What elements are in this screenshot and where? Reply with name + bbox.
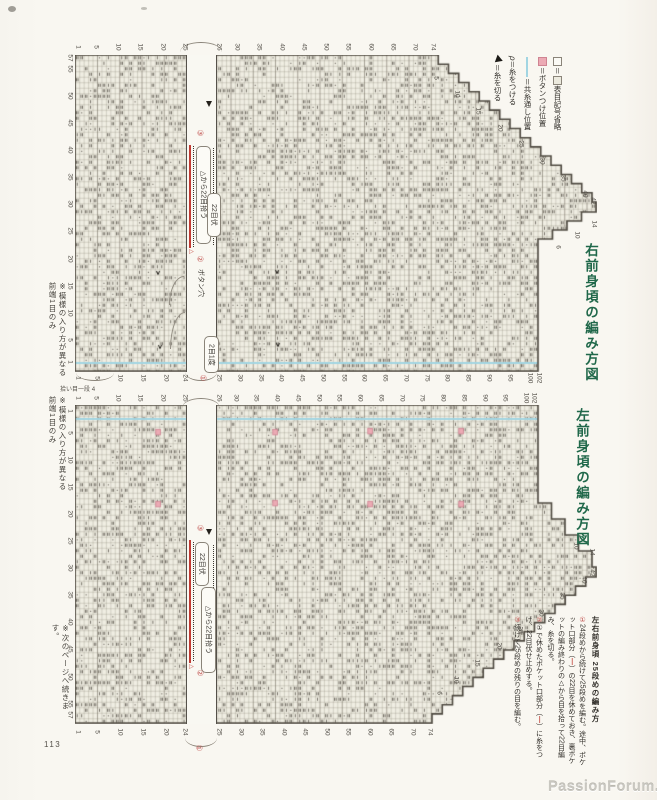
edge-number: 30 <box>231 394 238 401</box>
edge-number: 6 <box>435 691 442 695</box>
edge-number: 26 <box>215 43 222 50</box>
row25-instructions: 左右前身頃 25段めの編み方①24段めから続けて25段めを編む。途中、ポケット口… <box>510 616 600 766</box>
edge-number: 65 <box>381 374 388 381</box>
edge-number: 5 <box>93 376 100 380</box>
edge-number: 45 <box>300 43 307 50</box>
edge-number: 50 <box>314 394 321 401</box>
edge-number: 1 <box>74 396 81 400</box>
edge-number: 10 <box>66 309 73 316</box>
note-line: 前端1目のみ <box>47 282 57 400</box>
legend-label: 表目記号省略 <box>553 86 562 131</box>
edge-number: 42 <box>589 197 596 204</box>
scanned-page: ③ △から22目拾う 22目伏 △ ② ボタン穴 2目1度 ① 拾い目一段 4 … <box>0 0 657 800</box>
edge-number: 45 <box>294 394 301 401</box>
edge-number: 1 <box>66 360 73 364</box>
edge-number: 10 <box>116 374 123 381</box>
edge-number: 40 <box>66 147 73 154</box>
edge-number: 55 <box>344 728 351 735</box>
edge-number: 20 <box>162 374 169 381</box>
edge-number: 5 <box>92 45 99 49</box>
edge-number: 25 <box>181 394 188 401</box>
edge-number: 55 <box>344 43 351 50</box>
edge-number: 40 <box>579 576 586 583</box>
edge-number: 80 <box>439 394 446 401</box>
note-line: ※模様の入り方が異なる <box>57 396 67 514</box>
edge-number: 10 <box>573 231 580 238</box>
edge-number: 10 <box>572 542 579 549</box>
edge-number: 5 <box>432 76 439 80</box>
edge-number: 30 <box>66 201 73 208</box>
edge-number: 6 <box>554 245 561 249</box>
edge-number: 40 <box>279 728 286 735</box>
held-stitch-dots <box>193 146 194 247</box>
edge-number: 30 <box>537 609 544 616</box>
legend-label: ＝共糸通し位置 <box>523 78 532 131</box>
step-3-marker: ③ <box>196 524 204 531</box>
edge-number: 55 <box>66 700 73 707</box>
edge-number: 50 <box>322 43 329 50</box>
edge-number: 15 <box>473 659 480 666</box>
step-2-marker: ② <box>196 255 204 262</box>
triangle-marker: △ <box>188 664 195 669</box>
note-line: 前端1目のみ <box>47 396 57 514</box>
edge-number: 35 <box>252 394 259 401</box>
edge-number: 1 <box>66 409 73 413</box>
edge-number: 40 <box>273 394 280 401</box>
blank-square-icon <box>553 57 562 66</box>
edge-number: 10 <box>452 676 459 683</box>
edge-number: 35 <box>66 174 73 181</box>
legend-item: ＝表目記号省略 <box>552 56 563 178</box>
legend-label: ＝糸を切る <box>493 64 502 102</box>
legend-label: ＝ボタンつけ位置 <box>538 67 547 127</box>
edge-number: 40 <box>277 43 284 50</box>
step-1-marker: ① <box>199 374 207 381</box>
edge-number: 20 <box>494 643 501 650</box>
edge-number: 70 <box>408 728 415 735</box>
edge-number: 10 <box>453 91 460 98</box>
bindoff-22-label: 22目伏 <box>207 193 221 237</box>
legend-item: ρ＝糸をつける <box>507 56 518 178</box>
edge-number: 100 <box>526 373 533 384</box>
edge-number: 74 <box>429 43 436 50</box>
step-1-marker: ① <box>195 744 203 751</box>
page-number: 113 <box>44 740 61 749</box>
edge-number: 20 <box>66 510 73 517</box>
edge-number: 20 <box>162 728 169 735</box>
edge-number: 40 <box>66 619 73 626</box>
edge-number: 14 <box>588 548 595 555</box>
edge-number: 24 <box>181 728 188 735</box>
instructions-heading: 左右前身頃 25段めの編み方 <box>590 616 601 766</box>
held-stitch-dots <box>193 542 194 661</box>
edge-number: 85 <box>464 374 471 381</box>
edge-number: 102 <box>534 373 541 384</box>
edge-number: 25 <box>66 537 73 544</box>
edge-number: 25 <box>66 228 73 235</box>
edge-number: 74 <box>426 728 433 735</box>
edge-number: 45 <box>301 728 308 735</box>
edge-number: 30 <box>66 565 73 572</box>
edge-number: 75 <box>418 394 425 401</box>
arrow-marker-icon <box>206 529 212 535</box>
edge-number: 102 <box>530 393 537 404</box>
page-smudge <box>141 7 147 10</box>
edge-number: 65 <box>387 728 394 735</box>
edge-number: 1 <box>74 730 81 734</box>
watermark: PassionForum.ru <box>548 779 657 795</box>
edge-number: 90 <box>480 394 487 401</box>
edge-number: 60 <box>365 728 372 735</box>
edge-number: 15 <box>474 107 481 114</box>
edge-number: 65 <box>389 43 396 50</box>
edge-number: 57 <box>66 54 73 61</box>
edge-number: 65 <box>377 394 384 401</box>
edge-number: 55 <box>335 394 342 401</box>
edge-number: 5 <box>93 730 100 734</box>
knit-symbol-square-icon <box>553 76 562 85</box>
edge-number: 10 <box>66 456 73 463</box>
edge-number: 95 <box>505 374 512 381</box>
right-front-title: 右前身頃の編み方図 <box>580 243 600 403</box>
edge-number: 50 <box>66 673 73 680</box>
edge-number: 100 <box>522 393 529 404</box>
edge-number: 10 <box>116 728 123 735</box>
edge-number: 45 <box>66 119 73 126</box>
bindoff-22-label: 22目伏 <box>195 542 209 586</box>
edge-number: 30 <box>236 374 243 381</box>
edge-number: 40 <box>580 191 587 198</box>
edge-number: 45 <box>66 646 73 653</box>
edge-number: 20 <box>495 124 502 131</box>
edge-number: 75 <box>422 374 429 381</box>
edge-number: 30 <box>233 43 240 50</box>
edge-number: 80 <box>443 374 450 381</box>
edge-number: 35 <box>256 374 263 381</box>
edge-number: 5 <box>66 431 73 435</box>
pocket-opening-red-line <box>189 540 191 663</box>
edge-number: 70 <box>397 394 404 401</box>
edge-number: 20 <box>158 394 165 401</box>
edge-number: 35 <box>258 728 265 735</box>
edge-number: 15 <box>136 43 143 50</box>
edge-number: 10 <box>114 394 121 401</box>
edge-number: 70 <box>411 43 418 50</box>
edge-number: 26 <box>215 394 222 401</box>
right-front-pocket-gap: ③ △から22目拾う 22目伏 △ ② ボタン穴 2目1度 <box>186 55 217 372</box>
edge-number: 15 <box>139 728 146 735</box>
edge-number: 35 <box>559 174 566 181</box>
legend-item: ＝糸を切る <box>492 56 503 178</box>
step-2-marker: ② <box>196 669 204 676</box>
edge-number: 14 <box>590 220 597 227</box>
chart-legend: ＝表目記号省略＝ボタンつけ位置＝共糸通し位置ρ＝糸をつける＝糸を切る <box>488 56 563 178</box>
edge-number: 30 <box>538 157 545 164</box>
edge-number: 10 <box>114 43 121 50</box>
edge-number: 60 <box>360 374 367 381</box>
edge-number: 35 <box>255 43 262 50</box>
edge-number: 35 <box>66 592 73 599</box>
triangle-marker: △ <box>188 249 195 254</box>
legend-item: ＝共糸通し位置 <box>522 56 533 178</box>
edge-number: 60 <box>356 394 363 401</box>
edge-number: 60 <box>366 43 373 50</box>
edge-number: 1 <box>74 376 81 380</box>
edge-number: 15 <box>136 394 143 401</box>
pattern-note-left-front: ※模様の入り方が異なる前端1目のみ <box>47 396 67 514</box>
instruction-step: ①24段めから続けて25段めを編む。途中、ポケット口部分（―）の22目を休めてお… <box>545 616 587 766</box>
edge-number: 95 <box>501 394 508 401</box>
edge-number: 15 <box>66 282 73 289</box>
edge-number: 70 <box>402 374 409 381</box>
edge-number: 57 <box>66 711 73 718</box>
edge-number: 50 <box>319 374 326 381</box>
edge-number: 25 <box>215 374 222 381</box>
edge-number: 25 <box>517 141 524 148</box>
pickup-22-label: △から22目拾う <box>201 587 216 673</box>
edge-number: 50 <box>322 728 329 735</box>
decrease-label: 2目1度 <box>204 336 219 373</box>
edge-number: 15 <box>139 374 146 381</box>
edge-number: 1 <box>74 45 81 49</box>
arrow-marker-icon <box>206 101 212 107</box>
edge-number: 50 <box>66 92 73 99</box>
edge-number: 5 <box>92 396 99 400</box>
edge-number: 45 <box>298 374 305 381</box>
edge-number: 15 <box>66 483 73 490</box>
edge-number: 85 <box>460 394 467 401</box>
edge-number: 42 <box>588 569 595 576</box>
edge-number: 30 <box>236 728 243 735</box>
button-position-icon <box>538 57 547 66</box>
edge-number: 55 <box>66 65 73 72</box>
edge-number: 20 <box>158 43 165 50</box>
edge-number: 5 <box>66 338 73 342</box>
edge-number: 25 <box>215 728 222 735</box>
edge-number: 55 <box>339 374 346 381</box>
left-front-pocket-gap: ③ 22目伏 △から22目拾う △ ② <box>186 405 217 724</box>
instruction-step: ②①で休めたポケット口部分（―）に糸をつけ、22目伏せ止めする。 <box>523 616 544 766</box>
edge-number: 24 <box>181 374 188 381</box>
page-smudge <box>8 6 16 12</box>
buttonhole-label: ボタン穴 <box>196 269 206 297</box>
edge-number: 25 <box>181 43 188 50</box>
instruction-step: ③続けて25段めの残りの目を編む。 <box>511 616 522 766</box>
edge-number: 35 <box>558 593 565 600</box>
legend-label: ＝糸をつける <box>508 61 517 106</box>
edge-number: 90 <box>485 374 492 381</box>
edge-number: 40 <box>277 374 284 381</box>
thread-line-icon <box>526 57 529 77</box>
step-3-marker: ③ <box>196 129 204 136</box>
pattern-note-right-front: ※模様の入り方が異なる前端1目のみ <box>47 282 67 400</box>
edge-number: 20 <box>66 255 73 262</box>
edge-number: 25 <box>516 626 523 633</box>
pocket-opening-red-line <box>189 145 191 248</box>
